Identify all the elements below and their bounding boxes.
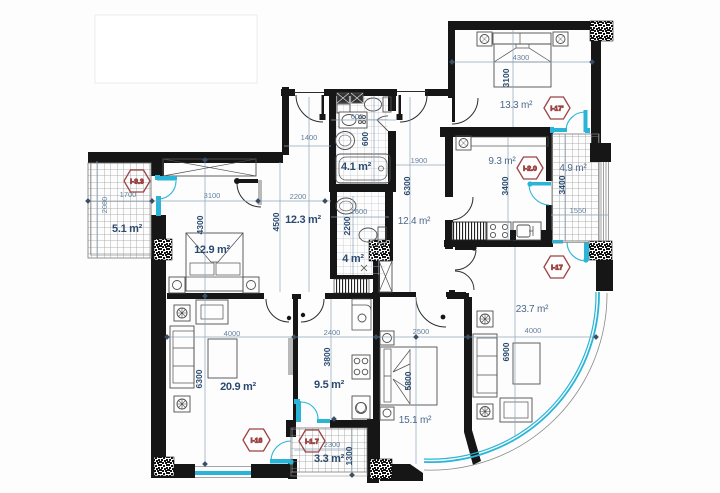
svg-text:12.4 m²: 12.4 m² [398,216,431,227]
svg-text:I-17': I-17' [550,106,563,113]
svg-text:9.3 m²: 9.3 m² [488,156,516,167]
svg-text:3.3 m²: 3.3 m² [314,453,345,465]
svg-text:I-17: I-17 [551,265,563,272]
svg-text:3800: 3800 [322,347,332,366]
svg-text:2400: 2400 [324,328,341,337]
svg-text:13.3 m²: 13.3 m² [500,100,533,111]
svg-text:4.9 m²: 4.9 m² [559,163,587,174]
svg-text:5.1 m²: 5.1 m² [112,223,143,235]
svg-text:I-1.7: I-1.7 [305,439,319,446]
svg-text:23.7 m²: 23.7 m² [516,304,549,315]
svg-text:4000: 4000 [525,326,542,335]
svg-text:3100: 3100 [501,68,511,87]
svg-text:3400: 3400 [500,176,510,195]
svg-text:9.5 m²: 9.5 m² [314,379,345,391]
svg-text:2500: 2500 [413,327,430,336]
svg-text:1550: 1550 [570,206,587,215]
svg-text:1400: 1400 [301,133,318,142]
svg-text:1300: 1300 [344,446,354,465]
svg-text:6900: 6900 [501,342,511,361]
svg-text:1900: 1900 [411,156,428,165]
svg-text:3100: 3100 [204,191,221,200]
svg-text:5800: 5800 [403,371,413,390]
svg-text:2200: 2200 [290,192,307,201]
svg-text:4500: 4500 [271,212,281,231]
svg-text:4300: 4300 [195,215,205,234]
svg-text:20.9 m²: 20.9 m² [220,381,256,393]
svg-text:600: 600 [360,132,370,146]
svg-text:12.3 m²: 12.3 m² [285,214,321,226]
svg-text:4300: 4300 [513,53,530,62]
svg-text:I-2.0: I-2.0 [523,166,537,173]
svg-text:4000: 4000 [224,329,241,338]
svg-text:6300: 6300 [194,369,204,388]
svg-text:6300: 6300 [402,176,412,195]
svg-text:3400: 3400 [557,175,567,194]
svg-text:4.1 m²: 4.1 m² [341,161,372,173]
svg-text:15.1 m²: 15.1 m² [399,415,432,426]
svg-text:I-16: I-16 [251,438,263,445]
svg-text:2200: 2200 [342,216,352,235]
svg-text:2300: 2300 [324,440,341,449]
svg-text:1600: 1600 [351,207,368,216]
svg-text:4 m²: 4 m² [342,253,364,265]
svg-text:600: 600 [351,112,364,121]
svg-text:I-3.3: I-3.3 [130,179,144,186]
svg-text:12.9 m²: 12.9 m² [194,244,230,256]
svg-text:2080: 2080 [100,197,109,214]
